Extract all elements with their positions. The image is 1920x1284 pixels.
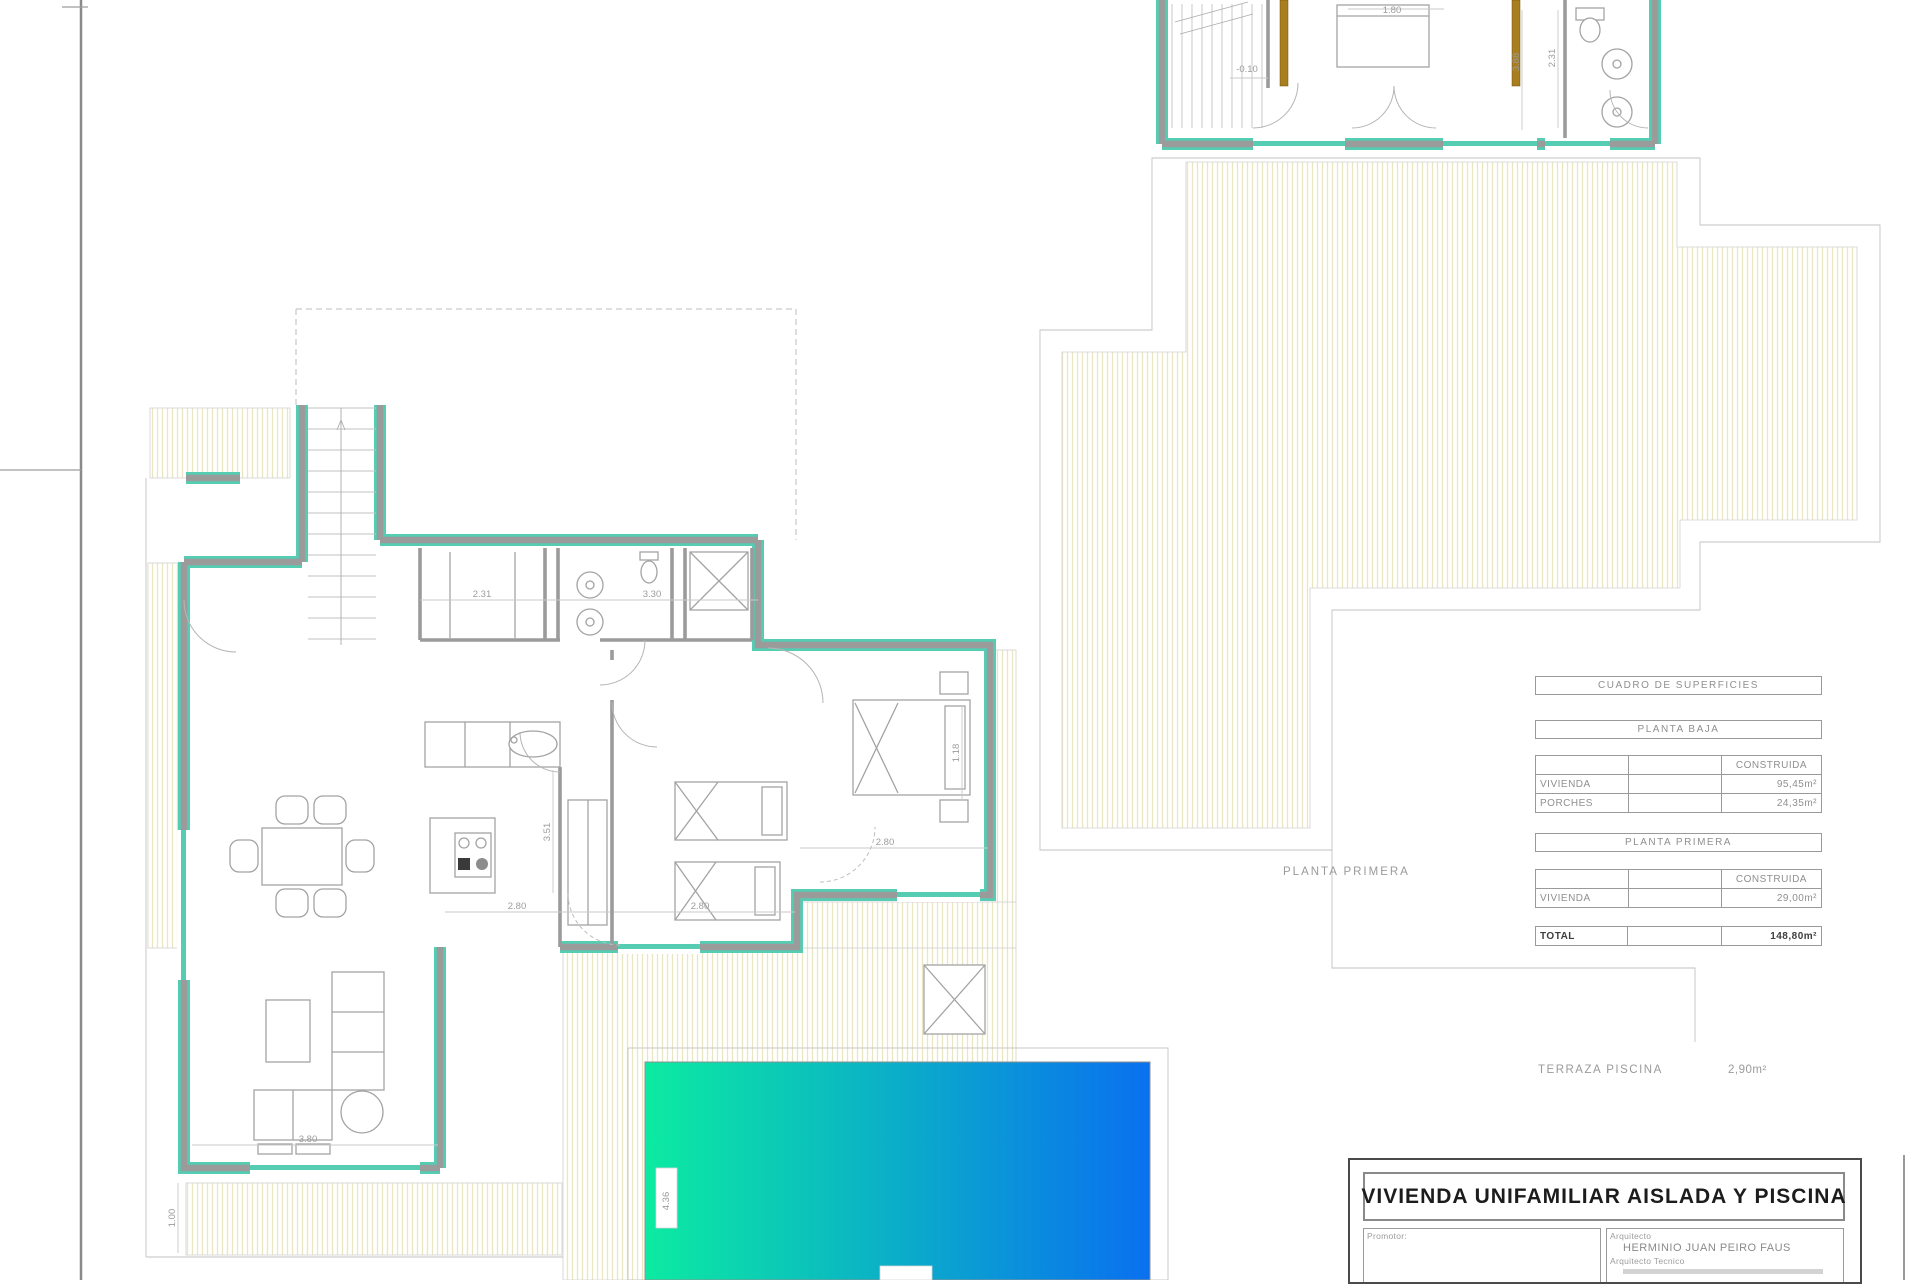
toilet-icon	[640, 552, 658, 583]
svg-text:3.88: 3.88	[1511, 53, 1522, 72]
pergola-icon	[924, 965, 985, 1034]
col-header: CONSTRUIDA	[1721, 870, 1821, 889]
row-label: PORCHES	[1536, 794, 1629, 813]
terraza-piscina-label: TERRAZA PISCINA	[1538, 1064, 1663, 1076]
wardrobe-icon	[1512, 0, 1520, 86]
col-header: CONSTRUIDA	[1721, 756, 1821, 775]
drawing-sheet: 1.80 -0.10 3.88 2.31	[0, 0, 1920, 1280]
svg-text:2.80: 2.80	[508, 901, 527, 912]
svg-text:-0.10: -0.10	[1236, 64, 1258, 75]
shower-icon	[690, 552, 748, 610]
door-arc	[1253, 83, 1648, 128]
side-table-icon	[341, 1091, 383, 1133]
sheet-frame	[0, 0, 88, 1280]
floor-plan-drawing: 1.80 -0.10 3.88 2.31	[0, 0, 1920, 1280]
promotor-cell: Promotor:	[1363, 1228, 1601, 1284]
promotor-label: Promotor:	[1367, 1231, 1600, 1241]
ground-stairs	[308, 408, 376, 645]
planta-primera-header: PLANTA PRIMERA	[1535, 833, 1822, 852]
planta-baja-table: CONSTRUIDA VIVIENDA 95,45m² PORCHES 24,3…	[1535, 755, 1822, 813]
row-value: 95,45m²	[1721, 775, 1821, 794]
svg-text:1.18: 1.18	[951, 744, 962, 763]
total-value: 148,80m²	[1722, 927, 1822, 946]
upper-floor-projection	[296, 309, 796, 540]
arquitecto-name: HERMINIO JUAN PEIRO FAUS	[1623, 1242, 1843, 1254]
title-block: VIVIENDA UNIFAMILIAR AISLADA Y PISCINA P…	[1348, 1158, 1862, 1284]
project-title: VIVIENDA UNIFAMILIAR AISLADA Y PISCINA	[1363, 1172, 1845, 1221]
twin-beds	[675, 782, 787, 920]
svg-text:4.36: 4.36	[661, 1192, 672, 1211]
planta-baja-header: PLANTA BAJA	[1535, 720, 1822, 739]
row-value: 29,00m²	[1721, 889, 1821, 908]
washbasin-icon	[577, 572, 603, 635]
svg-text:3.80: 3.80	[299, 1134, 318, 1145]
svg-text:2.80: 2.80	[876, 837, 895, 848]
pool-area: 4.36	[628, 1048, 1168, 1280]
row-value: 24,35m²	[1721, 794, 1821, 813]
washbasin-icon	[1602, 49, 1632, 127]
sink-icon	[509, 731, 557, 757]
terraza-piscina-value: 2,90m²	[1728, 1064, 1767, 1076]
total-row: TOTAL 148,80m²	[1535, 926, 1822, 946]
row-label: VIVIENDA	[1536, 889, 1629, 908]
first-floor-label: PLANTA PRIMERA	[1283, 866, 1410, 878]
svg-text:3.51: 3.51	[542, 823, 553, 842]
arquitecto-tecnico-label: Arquitecto Tecnico	[1610, 1256, 1843, 1266]
nightstand-icon	[940, 800, 968, 822]
toilet-icon	[1576, 8, 1604, 42]
sofa	[254, 972, 384, 1154]
arquitecto-label: Arquitecto	[1610, 1231, 1843, 1241]
svg-text:3.30: 3.30	[643, 589, 662, 600]
svg-text:2.31: 2.31	[1547, 49, 1558, 68]
wardrobe-icon	[1280, 0, 1288, 86]
planta-primera-table: CONSTRUIDA VIVIENDA 29,00m²	[1535, 869, 1822, 908]
svg-text:2.31: 2.31	[473, 589, 492, 600]
surface-table-title: CUADRO DE SUPERFICIES	[1535, 676, 1822, 695]
pool	[645, 1062, 1150, 1280]
svg-text:1.00: 1.00	[167, 1209, 178, 1228]
clipped-text-line	[1623, 1269, 1823, 1274]
kitchen-island	[430, 818, 495, 893]
door-arc	[184, 600, 823, 772]
total-label: TOTAL	[1536, 927, 1628, 946]
dining-table	[230, 796, 374, 917]
svg-text:2.80: 2.80	[691, 901, 710, 912]
arquitecto-cell: Arquitecto HERMINIO JUAN PEIRO FAUS Arqu…	[1606, 1228, 1844, 1284]
row-label: VIVIENDA	[1536, 775, 1629, 794]
kitchen-counter	[425, 722, 560, 767]
svg-text:1.80: 1.80	[1383, 5, 1402, 16]
sheet-edge-line	[1903, 1155, 1905, 1280]
nightstand-icon	[940, 672, 968, 694]
wardrobe	[568, 800, 607, 925]
